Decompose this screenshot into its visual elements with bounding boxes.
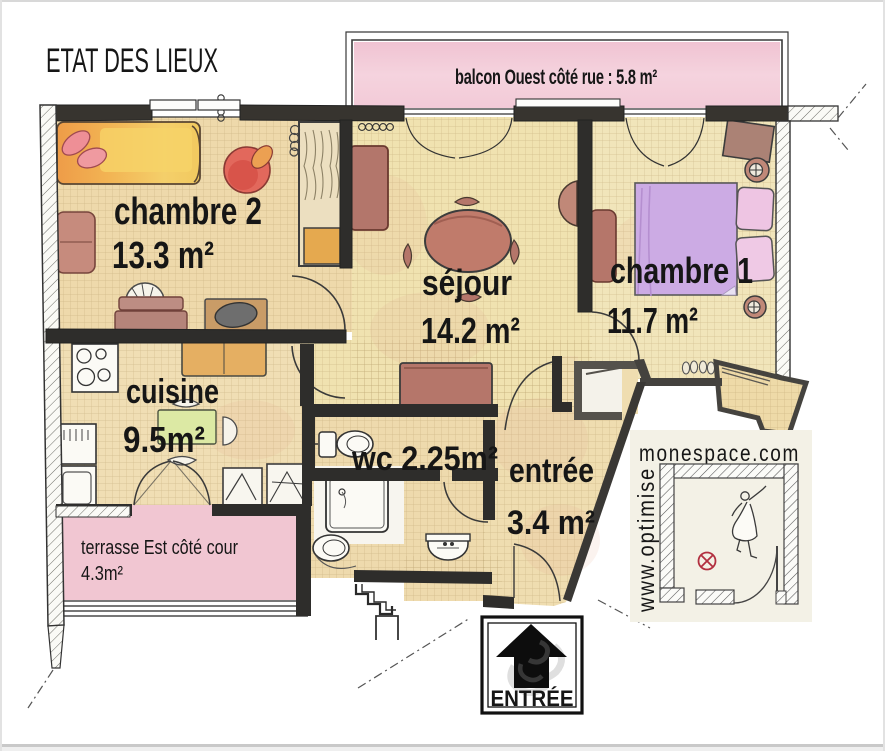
- svg-text:chambre 1: chambre 1: [610, 250, 753, 291]
- svg-text:4.3m²: 4.3m²: [81, 563, 123, 585]
- svg-text:monespace.com: monespace.com: [639, 440, 800, 466]
- svg-text:www.optimise: www.optimise: [633, 467, 659, 613]
- svg-text:3.4 m²: 3.4 m²: [507, 504, 595, 542]
- svg-text:séjour: séjour: [422, 262, 512, 303]
- svg-text:cuisine: cuisine: [126, 373, 219, 411]
- svg-text:9.5m²: 9.5m²: [123, 419, 205, 460]
- svg-text:chambre 2: chambre 2: [114, 191, 262, 233]
- svg-text:entrée: entrée: [509, 452, 594, 490]
- svg-text:terrasse Est côté cour: terrasse Est côté cour: [81, 537, 238, 559]
- svg-text:13.3 m²: 13.3 m²: [112, 235, 214, 277]
- svg-text:wc 2.25m²: wc 2.25m²: [351, 440, 498, 478]
- svg-text:11.7 m²: 11.7 m²: [607, 300, 698, 341]
- svg-text:balcon Ouest côté rue : 5.8 m²: balcon Ouest côté rue : 5.8 m²: [455, 66, 657, 89]
- svg-text:14.2 m²: 14.2 m²: [421, 310, 520, 351]
- svg-text:ENTRÉE: ENTRÉE: [491, 686, 574, 711]
- svg-text:ETAT DES LIEUX: ETAT DES LIEUX: [46, 42, 218, 80]
